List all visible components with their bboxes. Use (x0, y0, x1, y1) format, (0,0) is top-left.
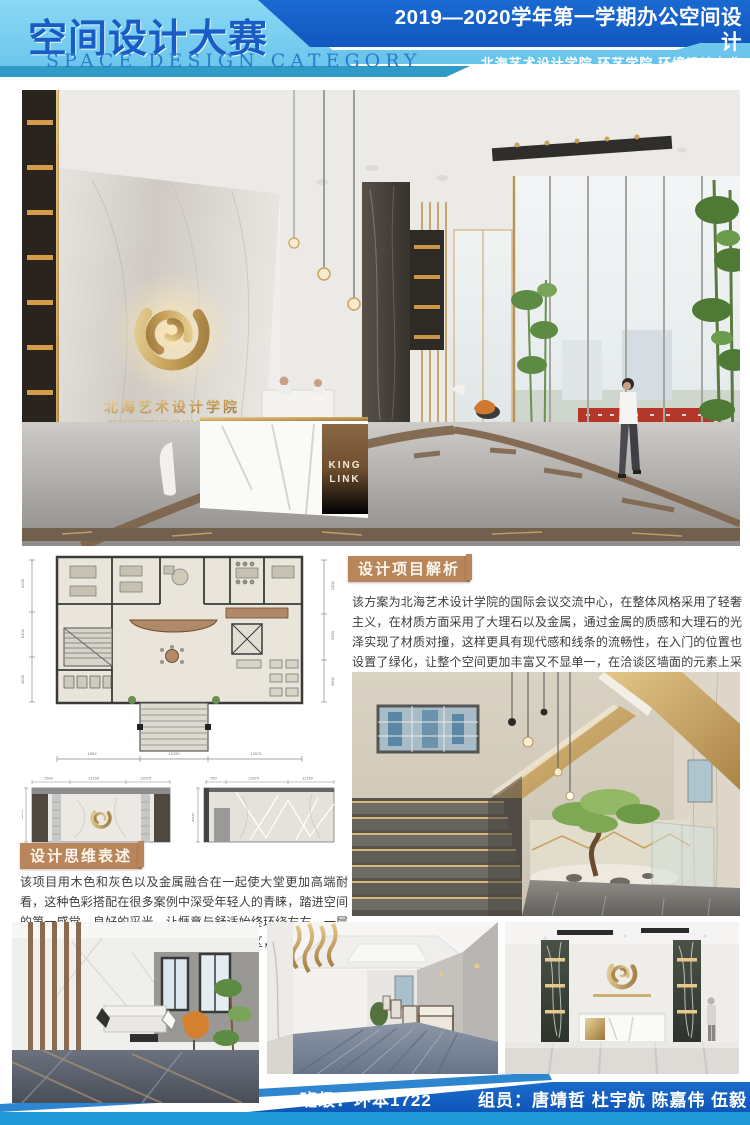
reception-hall-render (505, 922, 739, 1074)
elev-dim: 12150 (302, 776, 314, 781)
plan-dim: 13575 (250, 751, 262, 756)
desk-sign-line2: LINK (329, 474, 360, 485)
school-line: 北海艺术设计学院 环艺学院 环境设计专业 (390, 55, 742, 72)
hall-ceiling (505, 922, 739, 944)
plan-dim: 4500 (20, 674, 25, 684)
plan-dim: 8100 (20, 628, 25, 638)
plan-entrance-stairs (128, 696, 220, 751)
logo-wall-name-cn: 北海艺术设计学院 (104, 399, 240, 415)
receptionist-head (280, 377, 289, 386)
footer-class: 班级：环本1722 (300, 1086, 432, 1111)
staircase-render (352, 672, 740, 916)
elev-dim: 12150 (88, 776, 100, 781)
footer-members: 组员：唐靖哲 杜宇航 陈嘉伟 伍毅 (478, 1086, 747, 1111)
hall-reception-desk (579, 1012, 665, 1042)
floor-plan-drawing: 4200 8100 4500 2400 9300 3900 1500 12150… (12, 552, 342, 766)
course-title: 2019—2020学年第一学期办公空间设计 (390, 5, 742, 55)
footer-bottom-stripe (0, 1112, 750, 1125)
plan-dim: 2400 (330, 580, 335, 590)
elev-dim: 750 (210, 776, 217, 781)
elev-dim: 1500 (44, 776, 54, 781)
green-marble-column-right (673, 940, 701, 1042)
plan-plant (128, 696, 136, 704)
desk-sign-line1: KING (329, 460, 362, 471)
lounge-floor (12, 1050, 259, 1103)
lounge-render (12, 922, 259, 1103)
stair-window (378, 706, 478, 752)
corridor-render (267, 922, 498, 1074)
elev-dim: 13575 (140, 776, 152, 781)
elev-dim: 3000 (192, 812, 195, 822)
poster-page: 空间设计大赛 SPACE DESIGN CATEGORY 2019—2020学年… (0, 0, 750, 1125)
thinking-label-bar (138, 841, 144, 867)
analysis-label-bar (466, 554, 472, 580)
thinking-section-label: 设计思维表述 (20, 843, 142, 869)
hall-floor (505, 1042, 739, 1074)
poster-subtitle-en: SPACE DESIGN CATEGORY (46, 50, 421, 72)
elevation-reception-wall: 1500 12150 13575 2800 (22, 776, 174, 846)
plan-dim: 12150 (168, 751, 180, 756)
stair-small-window (688, 760, 712, 802)
header-right-block: 2019—2020学年第一学期办公空间设计 北海艺术设计学院 环艺学院 环境设计… (390, 5, 742, 72)
glass-partition (454, 230, 512, 426)
plan-stairwell (64, 628, 112, 666)
analysis-section-label: 设计项目解析 (348, 556, 470, 582)
hall-desk-sign (585, 1018, 605, 1040)
plan-dim: 1500 (88, 751, 98, 756)
plan-dim: 4200 (20, 578, 25, 588)
glass-balustrade (652, 822, 714, 888)
coffee-table (130, 1034, 158, 1042)
elev-dim: 2800 (22, 809, 24, 819)
plan-dim: 3900 (330, 676, 335, 686)
green-marble-column-left (541, 940, 569, 1042)
main-lobby-render: 北海艺术设计学院 BEIHAI UNIVERSITY OF ART AND DE… (22, 90, 740, 546)
plan-dim: 9300 (330, 630, 335, 640)
elevation-meeting-wall: 750 13575 12150 3000 (192, 776, 338, 846)
elev-dim: 13575 (248, 776, 260, 781)
hall-logo-text-line (593, 994, 651, 997)
